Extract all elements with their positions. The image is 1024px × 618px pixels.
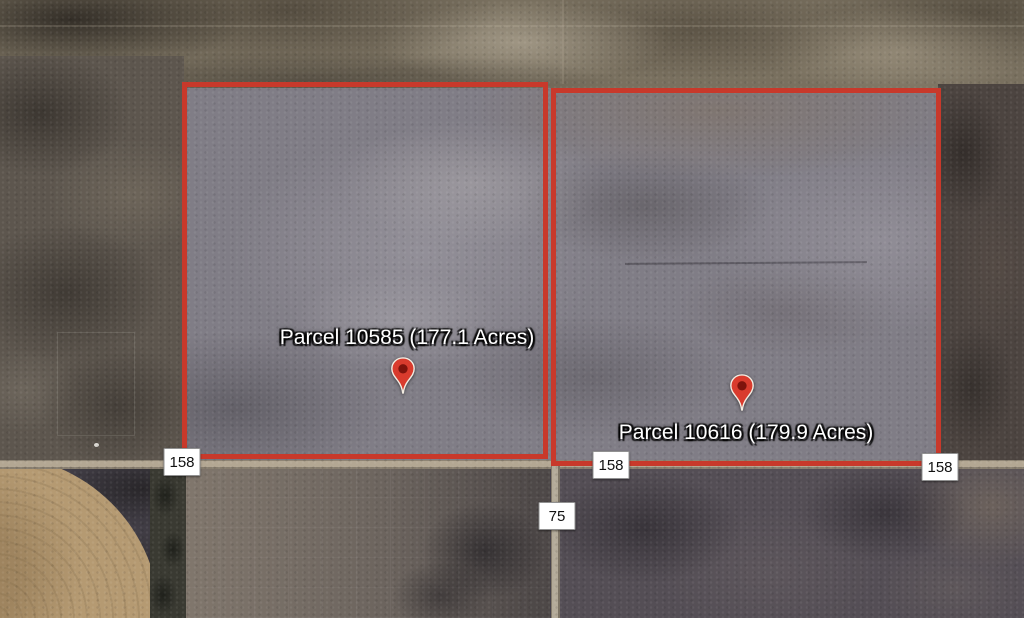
building-speck [94,443,99,447]
parcel-10585-label: Parcel 10585 (177.1 Acres) [280,326,534,350]
field-boundary-rect [57,332,135,436]
map-pin-icon-parcel-10616[interactable] [729,374,755,413]
faint-road-line [0,25,1024,27]
parcel-10585-boundary[interactable] [182,82,548,459]
road-shield-158-center: 158 [593,451,630,479]
terrain-bottom-band [0,460,1024,618]
satellite-map-canvas[interactable]: Parcel 10585 (177.1 Acres) Parcel 10616 … [0,0,1024,618]
map-pin-icon-parcel-10585[interactable] [390,357,416,396]
road-75 [551,465,560,618]
pivot-irrigation-circle [0,460,160,618]
south-east-field [560,468,1024,618]
road-shield-158-west: 158 [164,448,201,476]
tree-line [150,465,188,618]
plowed-field [186,469,550,618]
road-shield-158-east: 158 [922,453,959,481]
parcel-10616-label: Parcel 10616 (179.9 Acres) [619,421,873,445]
terrain-right-band [938,84,1024,464]
road-shield-75: 75 [539,502,576,530]
field-boundary-line [562,0,564,84]
